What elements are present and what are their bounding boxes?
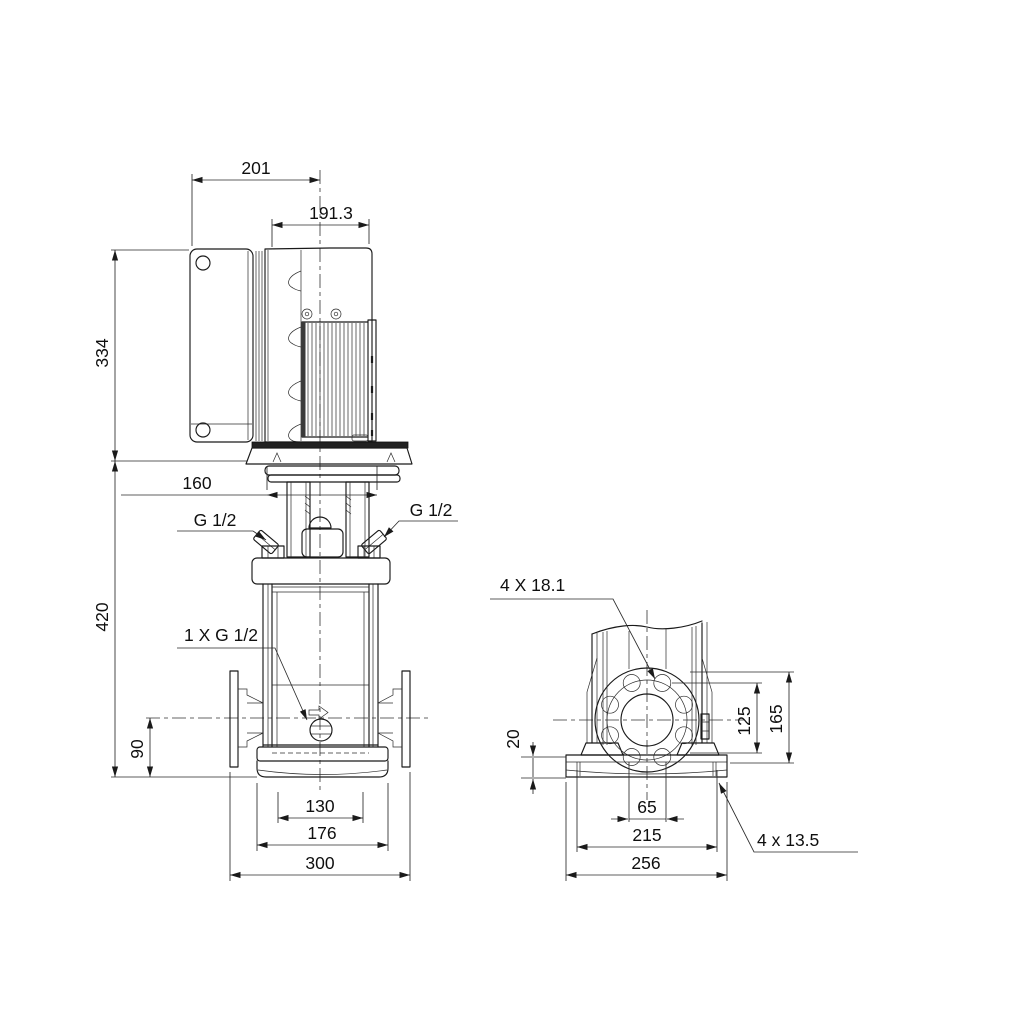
leader-gauge-right (384, 521, 458, 537)
flow-arrow-icon (309, 706, 328, 719)
dim-90-label: 90 (127, 739, 147, 759)
control-box-hole-bottom (196, 423, 210, 437)
control-box (190, 249, 253, 442)
guard-left-detail (291, 482, 310, 557)
dim-160-label: 160 (182, 473, 211, 493)
base-skirt-curve (258, 770, 387, 775)
discharge-flange (378, 671, 410, 767)
drain-port-label: 1 X G 1/2 (184, 625, 258, 645)
dim-215-label: 215 (632, 825, 661, 845)
staybolts (263, 584, 378, 747)
side-base (566, 755, 727, 777)
dim-125-label: 125 (734, 706, 754, 735)
chamber-flare (587, 658, 712, 743)
dim-65-label: 65 (637, 797, 656, 817)
motor (190, 248, 412, 482)
side-view: 4 X 18.1 125 165 20 65 215 256 4 x 13.5 (490, 575, 858, 881)
skirt-vents (273, 453, 395, 462)
dim-334-label: 334 (92, 338, 112, 367)
gauge-port-right-label: G 1/2 (410, 500, 453, 520)
base-pot (257, 747, 388, 761)
dim-420-label: 420 (92, 602, 112, 631)
motor-flange-band (252, 442, 408, 448)
control-box-face-lines (191, 251, 252, 440)
dim-191-label: 191.3 (309, 203, 353, 223)
front-view: 201 191.3 334 160 420 90 G 1/2 G 1/2 1 X… (92, 158, 458, 881)
heatsink-screw-right-center (334, 312, 338, 316)
suction-flange (230, 671, 263, 767)
column-inner-lines (597, 622, 707, 745)
cover-clips (289, 271, 301, 442)
flange-holes-label: 4 X 18.1 (500, 575, 565, 595)
drain-plug (310, 719, 332, 741)
front-dimensions: 201 191.3 334 160 420 90 G 1/2 G 1/2 1 X… (92, 158, 458, 881)
heatsink-left-band (302, 322, 306, 437)
side-dimensions: 4 X 18.1 125 165 20 65 215 256 4 x 13.5 (490, 575, 858, 881)
gauge-port-left-label: G 1/2 (194, 510, 237, 530)
pump-head-flange (252, 558, 390, 584)
pump-head (252, 482, 390, 584)
base-holes-label: 4 x 13.5 (757, 830, 819, 850)
heatsink-screw-left (302, 309, 312, 319)
sleeve-joints (272, 587, 369, 685)
coupling-guard-left (287, 482, 310, 557)
pump-dimensional-drawing: 201 191.3 334 160 420 90 G 1/2 G 1/2 1 X… (0, 0, 1024, 1024)
motor-stool-ring-2 (268, 475, 400, 482)
sleeve-inner-lines (268, 584, 373, 747)
dim-20-label: 20 (503, 729, 523, 749)
heatsink-fins (308, 323, 364, 436)
dim-176-label: 176 (307, 823, 336, 843)
hinge-lines (256, 251, 262, 441)
heatsink-screw-right (331, 309, 341, 319)
dim-201-label: 201 (241, 158, 270, 178)
leader-drain (177, 648, 307, 720)
heatsink-screw-left-center (305, 312, 309, 316)
dim-130-label: 130 (305, 796, 334, 816)
leader-gauge-left (177, 531, 266, 540)
coupling-plate (302, 529, 343, 557)
dim-300-label: 300 (305, 853, 334, 873)
dim-165-label: 165 (766, 704, 786, 733)
drain-plug-flats (311, 726, 331, 734)
drawing-page: 201 191.3 334 160 420 90 G 1/2 G 1/2 1 X… (0, 0, 1024, 1024)
leader-flange-holes (490, 599, 655, 679)
dim-256-label: 256 (631, 853, 660, 873)
control-box-hole-top (196, 256, 210, 270)
motor-stool-ring-1 (265, 466, 399, 475)
